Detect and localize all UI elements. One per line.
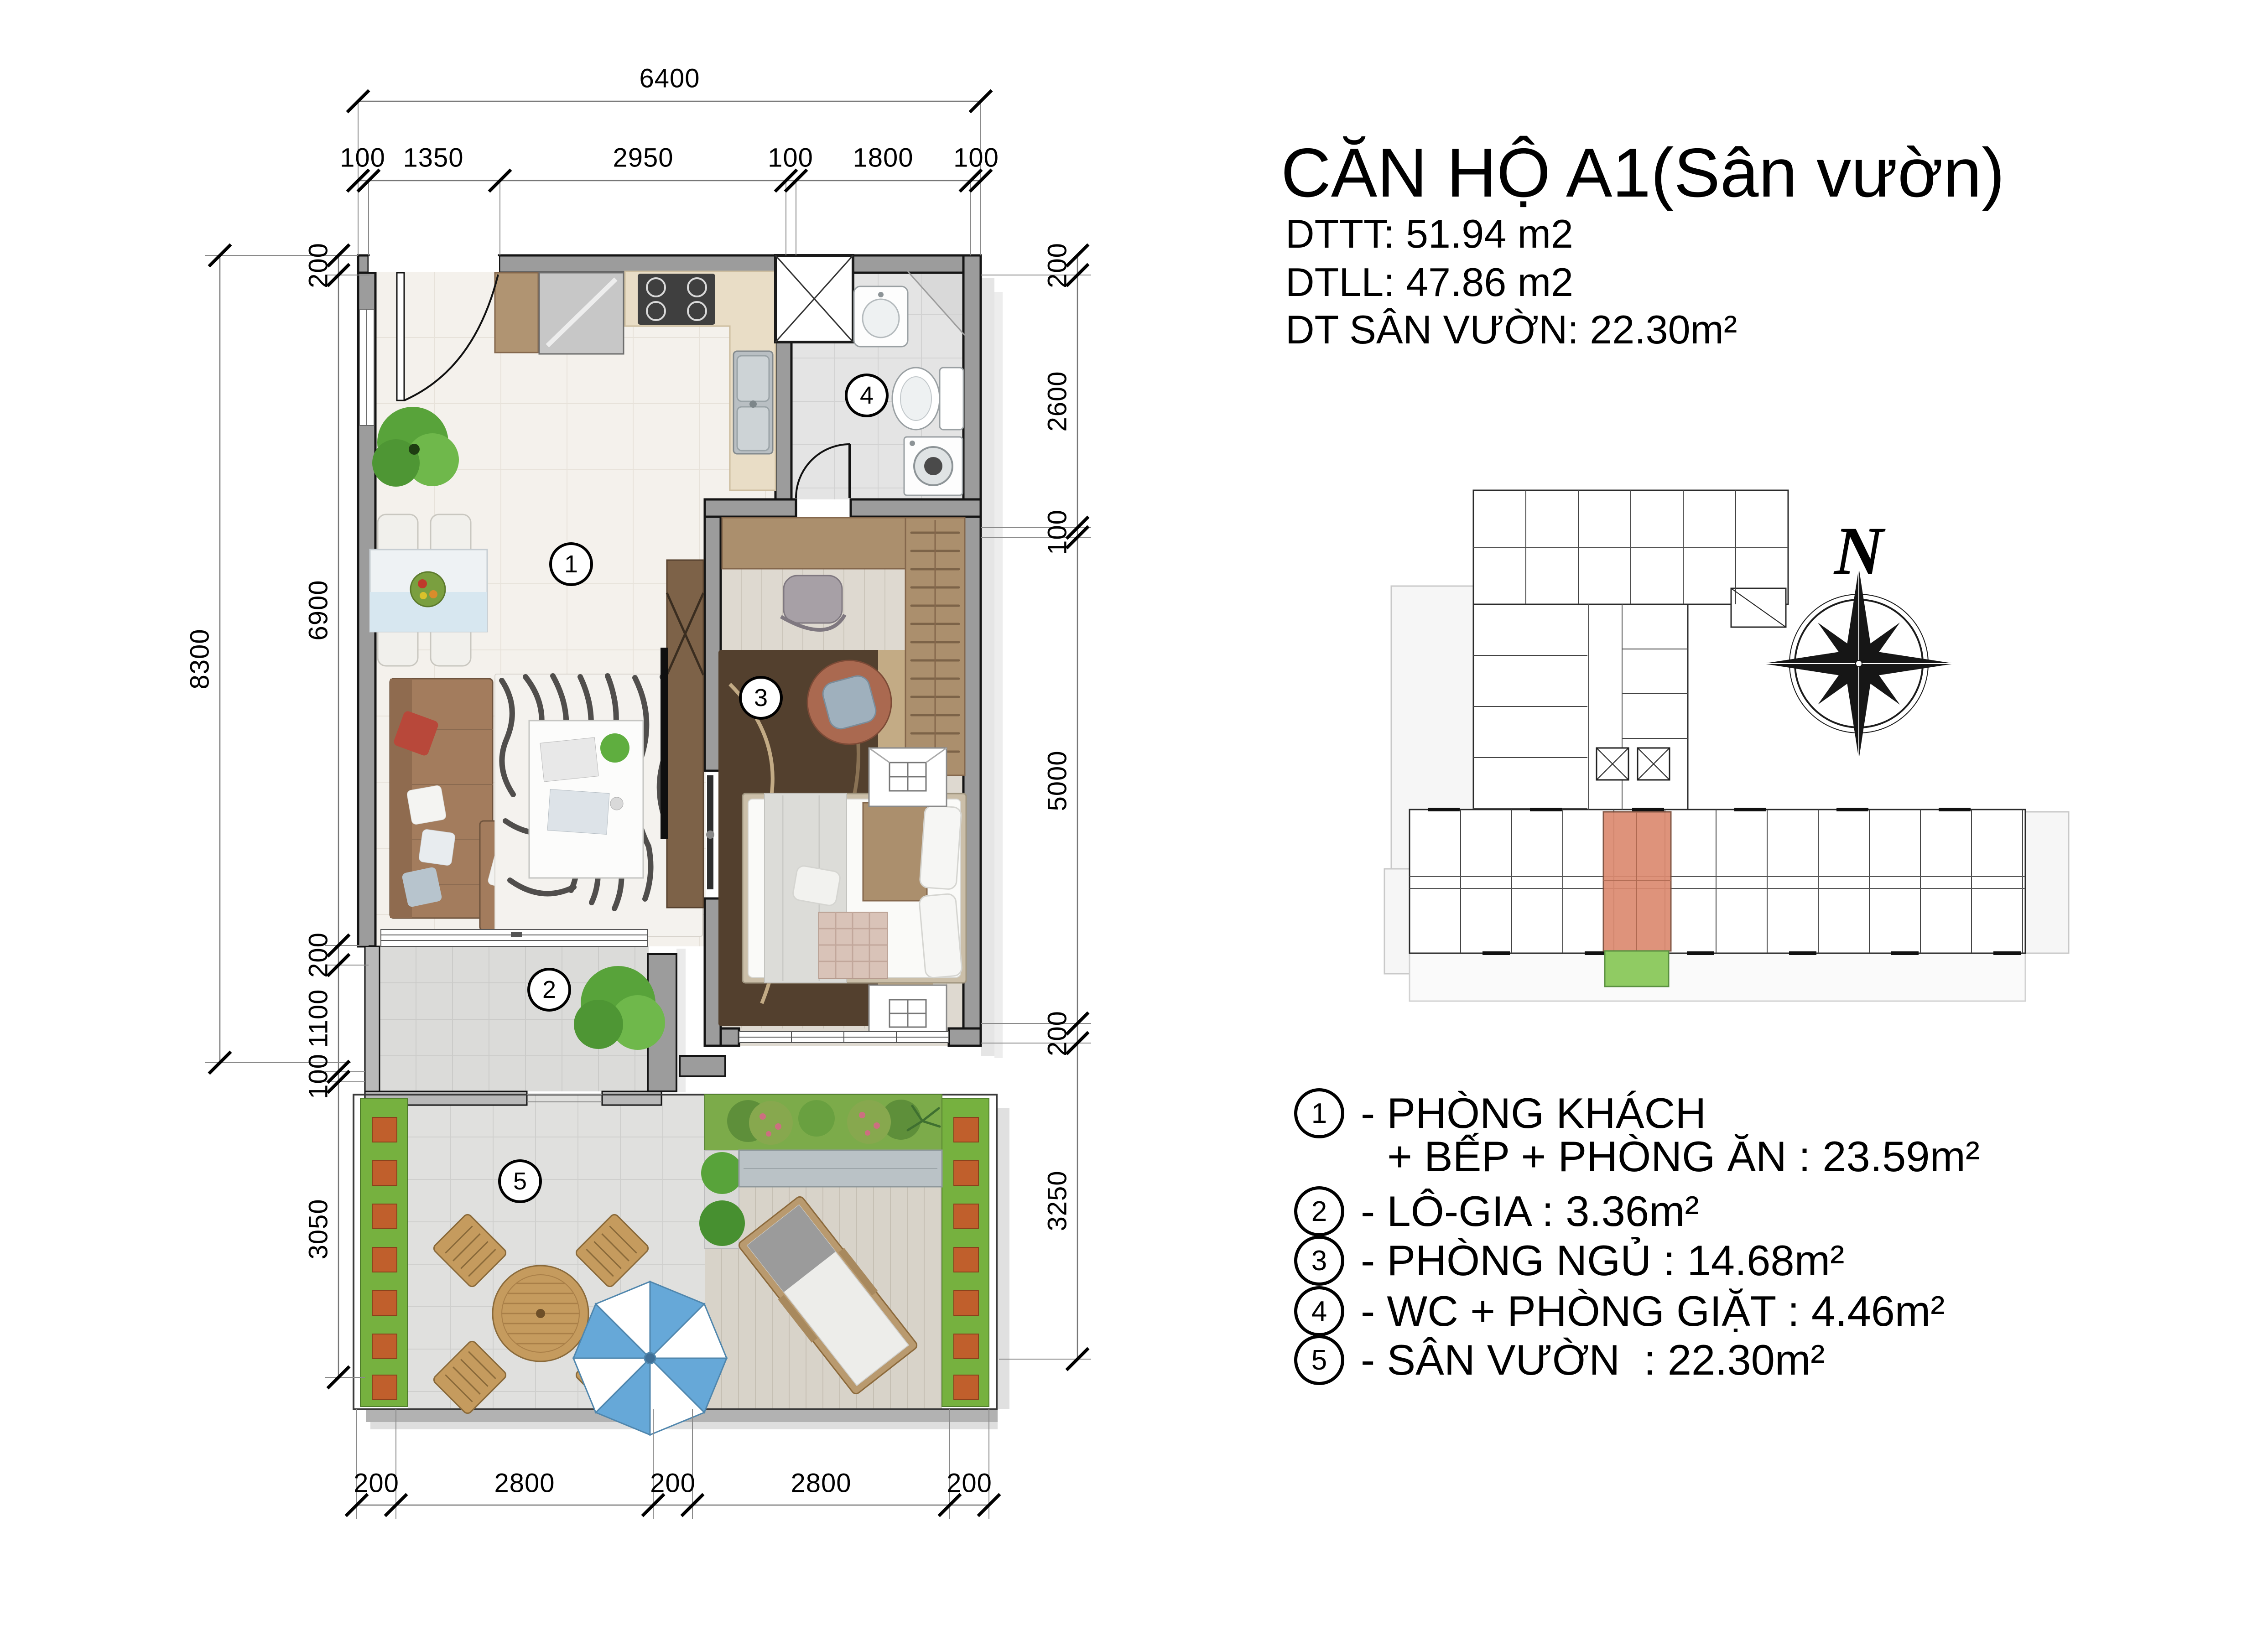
entry-door-leaf — [397, 273, 404, 400]
legend-item-5: 5 - SÂN VƯỜN : 22.30m² — [1294, 1335, 1825, 1385]
legend-text-1b: + BẾP + PHÒNG ĂN : 23.59m² — [1387, 1132, 1980, 1181]
loggia-slider — [381, 929, 648, 946]
room-label-bedroom: 3 — [739, 676, 783, 720]
floorplan-sheet: { "title": { "heading": "CĂN HỘ A1(Sân v… — [0, 0, 2268, 1651]
highlighted-garden — [1605, 951, 1669, 986]
toilet-tank — [940, 368, 963, 430]
legend-text-1: - PHÒNG KHÁCH — [1361, 1089, 1706, 1138]
dim: 2600 — [1042, 371, 1073, 431]
dim-top-total: 6400 — [639, 63, 700, 94]
dim: 200 — [303, 932, 334, 978]
dim: 1800 — [853, 143, 913, 173]
area-dttt: DTTT: 51.94 m2 — [1285, 211, 1573, 257]
desk — [722, 518, 907, 569]
dim: 2800 — [791, 1468, 851, 1499]
compass-rose — [1763, 568, 1955, 759]
shaft — [775, 255, 853, 342]
dim: 200 — [1042, 243, 1073, 288]
dim: 200 — [650, 1468, 696, 1499]
legend-item-1: 1 - PHÒNG KHÁCH — [1294, 1088, 1706, 1138]
area-garden: DT SÂN VƯỜN: 22.30m² — [1285, 306, 1737, 353]
legend-num-3: 3 — [1294, 1236, 1344, 1286]
legend-text-5: - SÂN VƯỜN : 22.30m² — [1361, 1335, 1825, 1385]
dim: 2950 — [613, 143, 673, 173]
dim: 1100 — [303, 989, 334, 1048]
dim: 200 — [354, 1468, 399, 1499]
dim: 100 — [1042, 509, 1073, 555]
dim: 3050 — [303, 1199, 334, 1259]
legend-num-4: 4 — [1294, 1286, 1344, 1336]
tv — [661, 648, 668, 839]
sheet-title: CĂN HỘ A1(Sân vườn) — [1281, 133, 2005, 213]
room-label-wc: 4 — [845, 374, 889, 417]
desk-chair — [784, 576, 842, 623]
dim: 100 — [340, 143, 385, 173]
dim: 100 — [303, 1054, 334, 1099]
legend-num-2: 2 — [1294, 1186, 1344, 1236]
plan-graphics — [0, 0, 2268, 1651]
legend-item-2: 2 - LÔ-GIA : 3.36m² — [1294, 1186, 1699, 1236]
dim-left-total: 8300 — [185, 628, 215, 689]
dim: 100 — [768, 143, 813, 173]
legend-num-1: 1 — [1294, 1088, 1344, 1138]
kitchen-cabinet — [495, 273, 538, 353]
fruit-plate — [411, 572, 445, 607]
area-dtll: DTLL: 47.86 m2 — [1285, 259, 1573, 306]
room-label-garden: 5 — [498, 1159, 542, 1203]
legend-text-4: - WC + PHÒNG GIẶT : 4.46m² — [1361, 1287, 1945, 1336]
legend-item-3: 3 - PHÒNG NGỦ : 14.68m² — [1294, 1236, 1844, 1286]
tv-console — [667, 560, 703, 908]
dim: 200 — [1042, 1011, 1073, 1056]
dim: 6900 — [303, 580, 334, 640]
dim: 100 — [953, 143, 999, 173]
dim: 1350 — [403, 143, 463, 173]
dim: 2800 — [494, 1468, 555, 1499]
umbrella — [573, 1282, 727, 1435]
dim: 200 — [947, 1468, 992, 1499]
legend-text-2: - LÔ-GIA : 3.36m² — [1361, 1187, 1699, 1236]
overbed-panel — [863, 803, 927, 901]
key-plan — [1384, 490, 2069, 1001]
legend-item-4: 4 - WC + PHÒNG GIẶT : 4.46m² — [1294, 1286, 1945, 1336]
room-label-loggia: 2 — [527, 968, 571, 1012]
north-label: N — [1834, 512, 1883, 590]
legend-num-5: 5 — [1294, 1335, 1344, 1385]
dim: 5000 — [1042, 750, 1073, 811]
room-label-living: 1 — [549, 542, 593, 586]
legend-text-3: - PHÒNG NGỦ : 14.68m² — [1361, 1236, 1844, 1285]
dim: 200 — [303, 243, 334, 288]
dim: 3250 — [1042, 1170, 1073, 1231]
